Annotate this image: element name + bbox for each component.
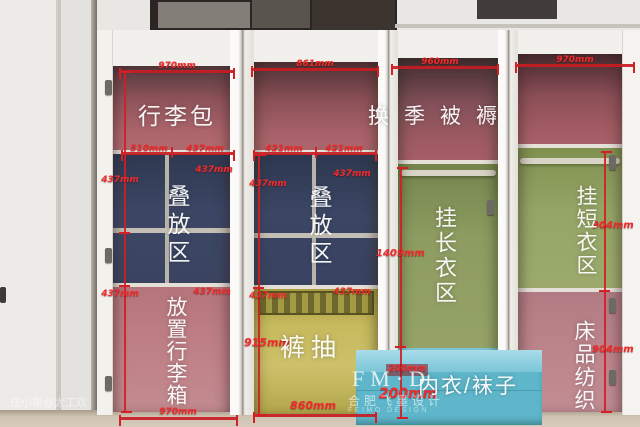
zone-label-long-hang: 挂长衣区 — [428, 206, 460, 306]
corner-watermark: 住小帮@太工欢 — [10, 394, 87, 410]
dim-label-c1-top: 970mm — [147, 62, 207, 72]
zone-label-suitcase: 放置行李箱 — [160, 296, 190, 406]
dim-label-c1-mid-a: 510mm — [126, 145, 172, 155]
zone-label-short-hang: 挂短衣区 — [570, 185, 600, 277]
zone-label-luggage-bag: 行李包 — [138, 97, 216, 131]
dim-tick — [253, 287, 264, 289]
dim-label-cell: 437mm — [98, 176, 142, 186]
dim-label-c2-bottom: 860mm — [283, 400, 343, 412]
brand-watermark: FM·D — [352, 366, 431, 392]
zone-label-fold-2: 叠放区 — [302, 185, 336, 269]
dim-tick — [119, 232, 130, 234]
dim-tick — [315, 147, 317, 158]
zone-label-pants-drawer: 裤抽 — [280, 328, 342, 364]
dim-label-c4-top: 970mm — [545, 56, 605, 66]
hinge-icon — [609, 155, 616, 170]
dim-label-cell: 437mm — [192, 166, 236, 176]
left-door — [0, 0, 58, 414]
ceiling-vent — [477, 0, 557, 19]
dim-line-c2-bottom — [254, 414, 376, 417]
dim-tick — [599, 290, 610, 292]
hinge-icon — [609, 370, 616, 385]
annotated-wardrobe-photo: 970mm 861mm 960mm 970mm 510mm 437mm 421m… — [0, 0, 640, 427]
dim-label-c2-top: 861mm — [285, 60, 345, 70]
zone-label-fold-1: 叠放区 — [160, 184, 194, 268]
zone-label-bedding-textile: 床品纺织 — [568, 320, 598, 412]
hinge-icon — [609, 298, 616, 313]
dim-tick — [119, 285, 130, 287]
dim-label-c3-height: 1409mm — [376, 248, 424, 259]
dim-line-c1-vert — [124, 72, 126, 412]
hinge-icon — [105, 80, 112, 95]
door-handle — [0, 287, 6, 303]
hinge-icon — [105, 376, 112, 391]
dim-label-cell: 437mm — [98, 290, 142, 300]
ceiling-panel — [312, 0, 395, 30]
dim-line-c4-vert — [604, 152, 606, 412]
hinge-icon — [105, 248, 112, 263]
left-wall-seam — [58, 0, 61, 412]
dim-label-c2-mid-a: 421mm — [258, 145, 310, 155]
dim-label-c1-bottom: 970mm — [148, 408, 208, 418]
dim-label-c1-mid-b: 437mm — [180, 145, 230, 155]
door-panel — [230, 30, 254, 415]
ceiling-panel — [252, 0, 310, 28]
dim-label-cell: 437mm — [330, 170, 374, 180]
dim-label-cell: 437mm — [246, 292, 290, 302]
dim-line-c2-vert — [258, 155, 260, 415]
ceiling-panel — [158, 2, 250, 28]
dim-label-c3-top: 960mm — [410, 58, 470, 68]
hinge-icon — [487, 200, 494, 215]
dim-tick — [395, 346, 406, 348]
dim-label-c4-lower: 904mm — [592, 344, 636, 355]
dim-label-cell: 437mm — [190, 288, 234, 298]
zone-label-seasonal-bedding: 换季被褥 — [368, 100, 512, 130]
dim-label-c2-mid-b: 421mm — [318, 145, 370, 155]
dim-label-cell: 437mm — [246, 180, 290, 190]
ceiling-shadow — [395, 24, 640, 28]
dim-label-cell: 437mm — [330, 288, 374, 298]
brand-watermark-en: FEIMO DESIGN — [348, 407, 429, 414]
